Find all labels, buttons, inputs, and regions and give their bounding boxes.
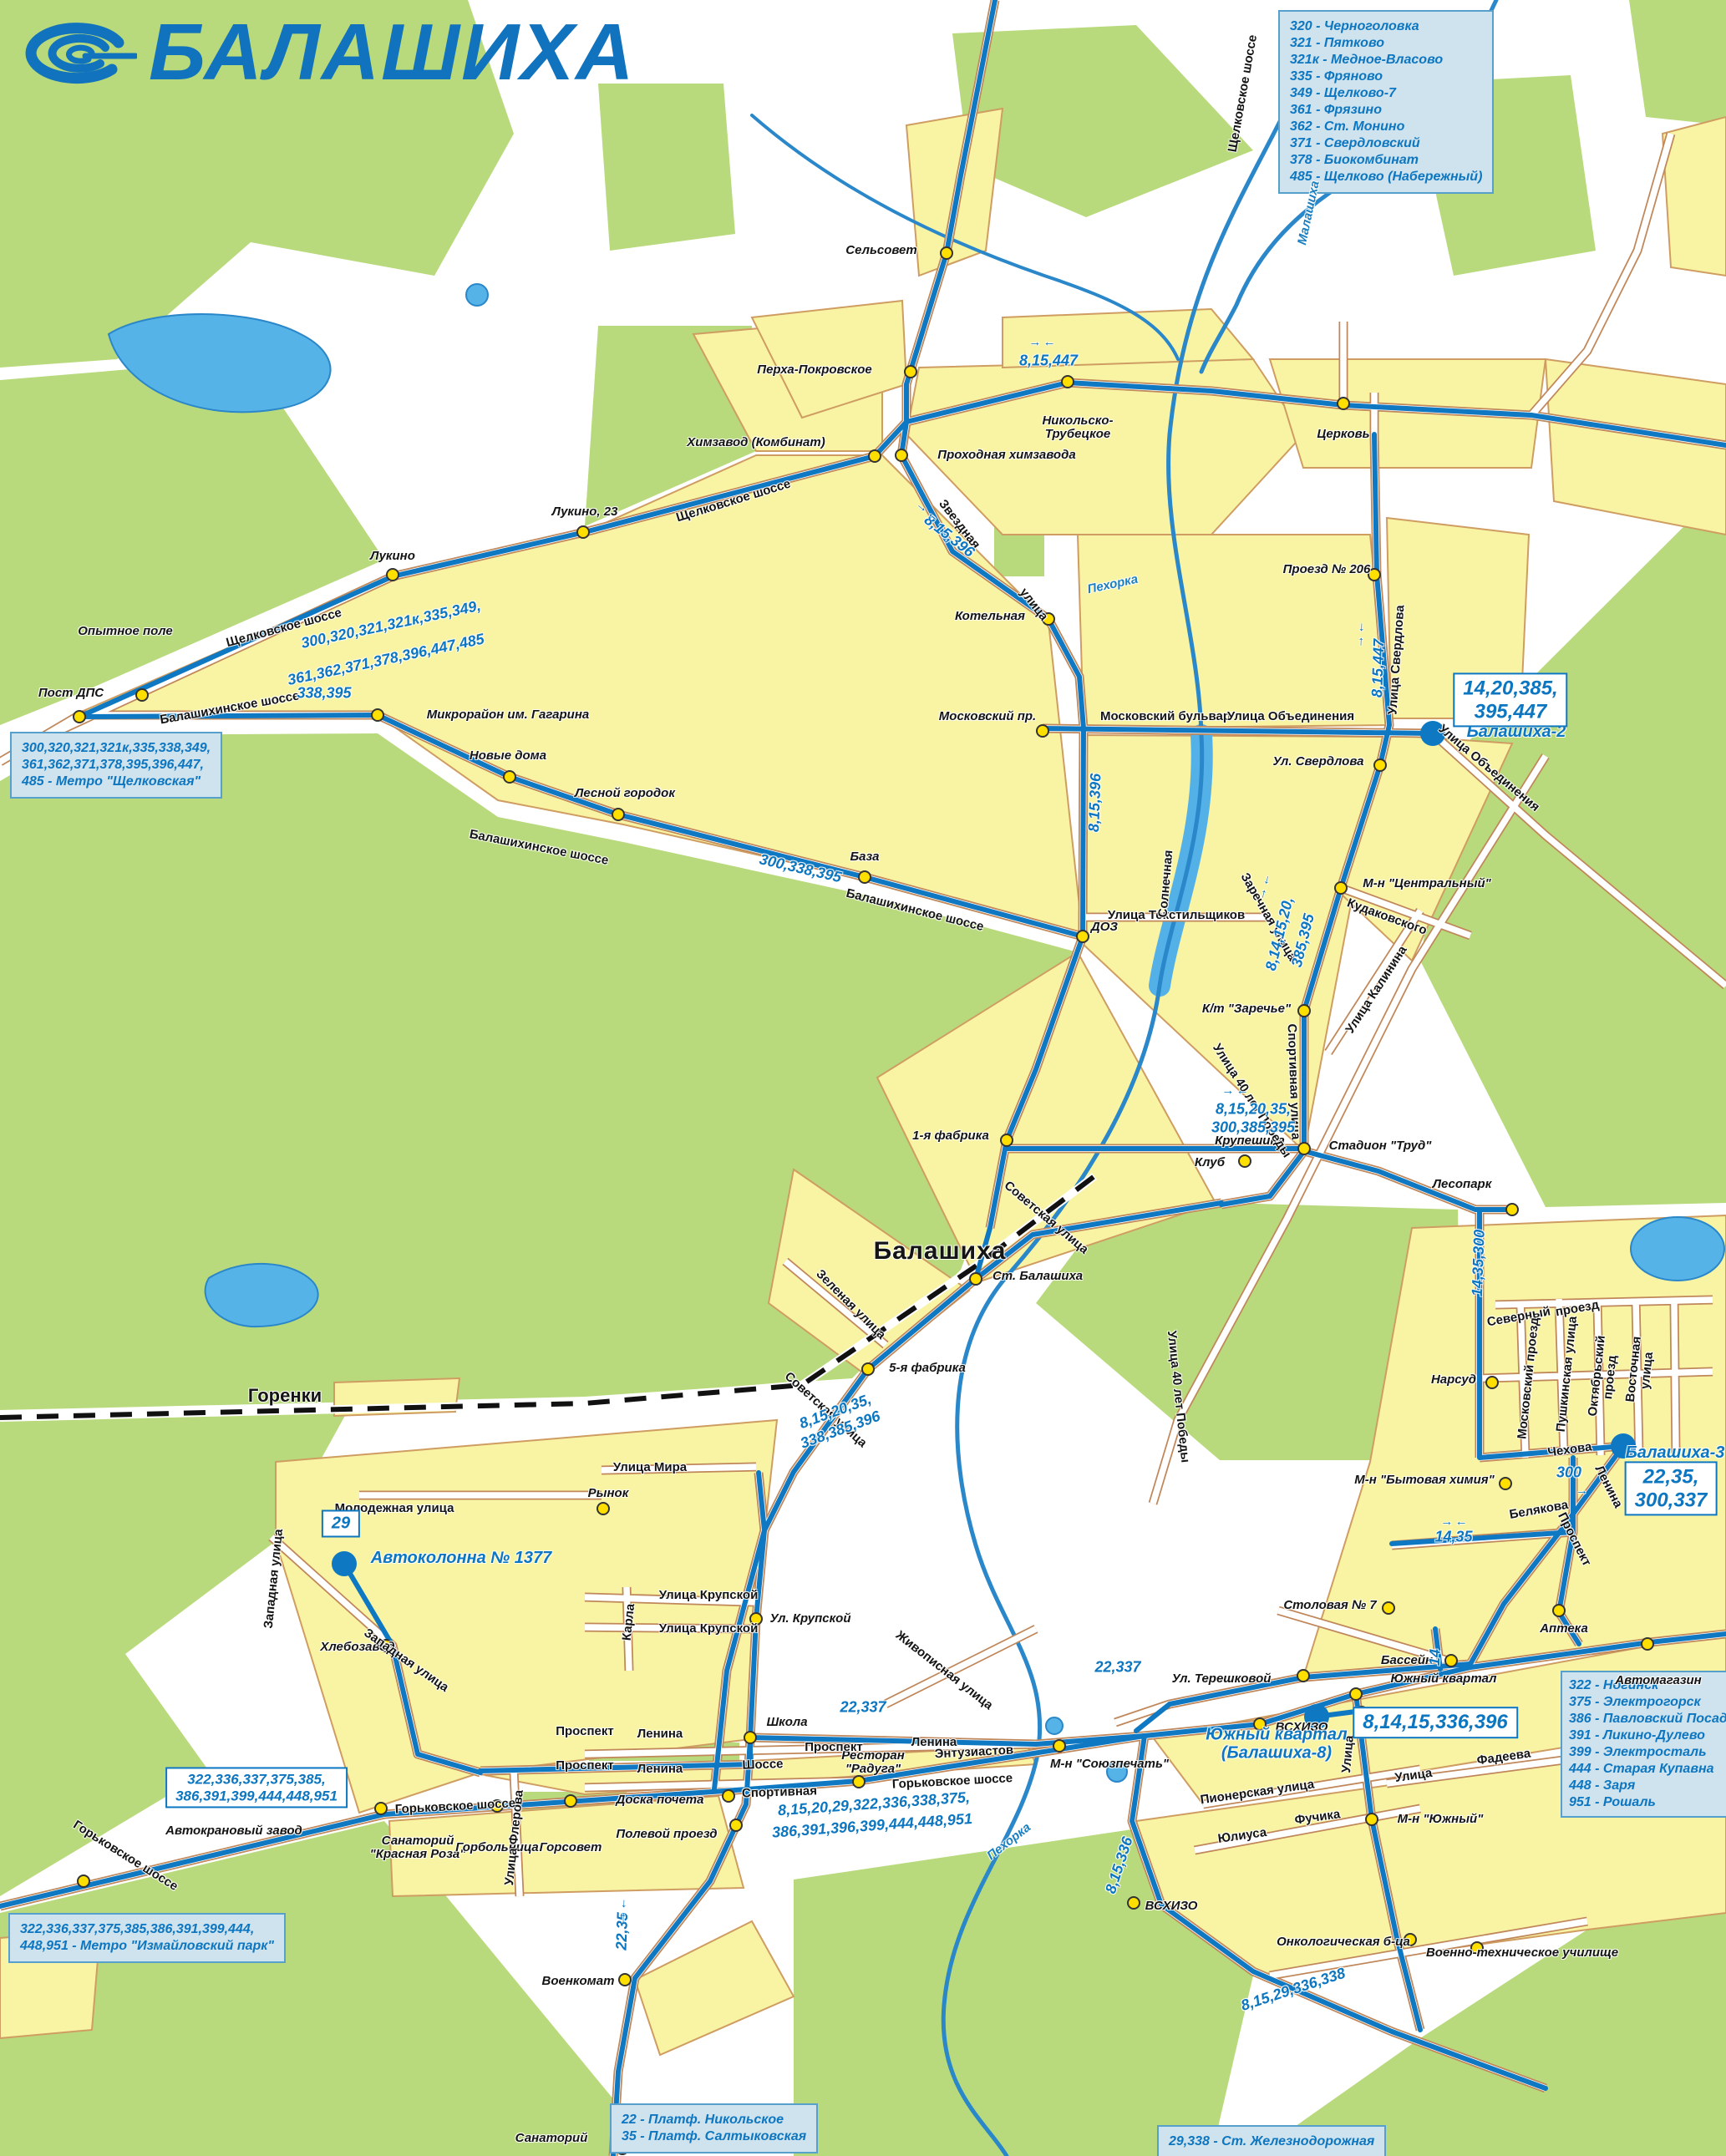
legend-item: 321 - Пятково — [1290, 35, 1482, 52]
bus-stop-dot — [1500, 1478, 1511, 1489]
legend-item: 399 - Электросталь — [1569, 1744, 1726, 1761]
legend-item: 378 - Биокомбинат — [1290, 152, 1482, 169]
map-canvas[interactable]: БАЛАШИХА 320 - Черноголовка321 - Пятково… — [0, 0, 1726, 2156]
legend-item: 485 - Щелково (Набережный) — [1290, 169, 1482, 185]
legend-platforms: 22 - Платф. Никольское 35 - Платф. Салты… — [610, 2103, 818, 2153]
legend-routes-east: 322 - Ногинск375 - Электрогорск386 - Пав… — [1561, 1671, 1726, 1818]
bus-stop-dot — [565, 1795, 576, 1807]
balashikha-logo-icon — [12, 11, 137, 94]
bus-stop-dot — [744, 1732, 756, 1743]
legend-item: 361 - Фрязино — [1290, 102, 1482, 119]
bus-stop-dot — [1062, 376, 1074, 388]
bus-stop-dot — [853, 1776, 865, 1788]
bus-stop-dot — [612, 809, 624, 820]
bus-stop-dot — [1350, 1688, 1362, 1700]
bus-stop-dot — [1053, 1740, 1065, 1752]
terminal-dot — [332, 1551, 357, 1576]
bus-stop-dot — [859, 871, 871, 883]
bus-stop-dot — [1077, 931, 1089, 942]
legend-izmailovsky: 322,336,337,375,385,386,391,399,444, 448… — [8, 1913, 286, 1963]
bus-stop-dot — [1404, 1934, 1416, 1945]
bus-stop-dot — [1471, 1942, 1483, 1954]
bus-stop-dot — [1335, 882, 1347, 894]
terminal-dot — [1420, 721, 1445, 746]
bus-stop-dot — [597, 1503, 609, 1514]
bus-stop-dot — [896, 449, 907, 461]
legend-item: 448 - Заря — [1569, 1778, 1726, 1794]
bus-stop-dot — [380, 1640, 392, 1651]
legend-item: 320 - Черноголовка — [1290, 18, 1482, 35]
bus-stop-dot — [1506, 1204, 1518, 1215]
legend-item: 951 - Рошаль — [1569, 1794, 1726, 1811]
bus-stop-dot — [1486, 1377, 1498, 1388]
bus-stop-dot — [491, 1800, 503, 1812]
legend-item: 321к - Медное-Власово — [1290, 52, 1482, 68]
bus-stop-dot — [941, 247, 952, 259]
legend-item: 444 - Старая Купавна — [1569, 1761, 1726, 1778]
terminal-dot — [1611, 1433, 1636, 1458]
legend-routes-north: 320 - Черноголовка321 - Пятково321к - Ме… — [1278, 10, 1494, 194]
legend-item: 375 - Электрогорск — [1569, 1694, 1726, 1711]
legend-item: 349 - Щелково-7 — [1290, 85, 1482, 102]
bus-stop-dot — [970, 1273, 982, 1285]
legend-shchelkovskaya: 300,320,321,321к,335,338,349, 361,362,37… — [10, 732, 222, 799]
bus-stop-dot — [1642, 1638, 1653, 1650]
page-title: БАЛАШИХА — [149, 7, 635, 99]
bus-stop-dot — [387, 569, 399, 581]
bus-stop-dot — [1374, 759, 1386, 771]
bus-stop-dot — [1254, 1718, 1266, 1730]
bus-stop-dot — [1298, 1005, 1310, 1017]
bus-stop-dot — [1366, 1814, 1378, 1825]
bus-stop-dot — [372, 709, 383, 721]
legend-item: 386 - Павловский Посад — [1569, 1711, 1726, 1727]
bus-stop-dot — [905, 366, 916, 378]
bus-stop-dot — [577, 526, 589, 538]
legend-item: 371 - Свердловский — [1290, 135, 1482, 152]
legend-zheleznodorozhnaya: 29,338 - Ст. Железнодорожная — [1157, 2125, 1386, 2156]
bus-stop-dot — [862, 1363, 874, 1375]
bus-stop-dot — [504, 771, 515, 783]
bus-stop-dot — [723, 1790, 734, 1802]
map-terrain — [0, 0, 1726, 2156]
legend-item: 335 - Фряново — [1290, 68, 1482, 85]
bus-stop-dot — [1001, 1134, 1013, 1146]
bus-stop-dot — [1338, 398, 1349, 409]
bus-stop-dot — [869, 450, 881, 462]
legend-item: 322 - Ногинск — [1569, 1677, 1726, 1694]
bus-stop-dot — [730, 1819, 742, 1831]
bus-stop-dot — [619, 1974, 631, 1986]
bus-stop-dot — [1383, 1602, 1394, 1614]
bus-stop-dot — [1298, 1143, 1310, 1154]
legend-item: 391 - Ликино-Дулево — [1569, 1727, 1726, 1744]
bus-stop-dot — [1043, 613, 1054, 625]
bus-stop-dot — [1356, 1707, 1368, 1718]
bus-stop-dot — [78, 1875, 89, 1887]
bus-stop-dot — [1445, 1655, 1457, 1666]
bus-stop-dot — [1239, 1155, 1251, 1167]
bus-stop-dot — [136, 689, 148, 701]
bus-stop-dot — [1037, 725, 1048, 737]
terminal-dot — [1304, 1704, 1329, 1729]
bus-stop-dot — [1553, 1605, 1565, 1616]
bus-stop-dot — [1368, 569, 1380, 581]
bus-stop-dot — [375, 1803, 387, 1814]
bus-stop-dot — [1297, 1670, 1309, 1682]
bus-stop-dot — [750, 1613, 762, 1625]
map-title-block: БАЛАШИХА — [12, 7, 635, 99]
legend-item: 362 - Ст. Монино — [1290, 119, 1482, 135]
bus-stop-dot — [1128, 1897, 1140, 1909]
bus-stop-dot — [74, 711, 85, 723]
